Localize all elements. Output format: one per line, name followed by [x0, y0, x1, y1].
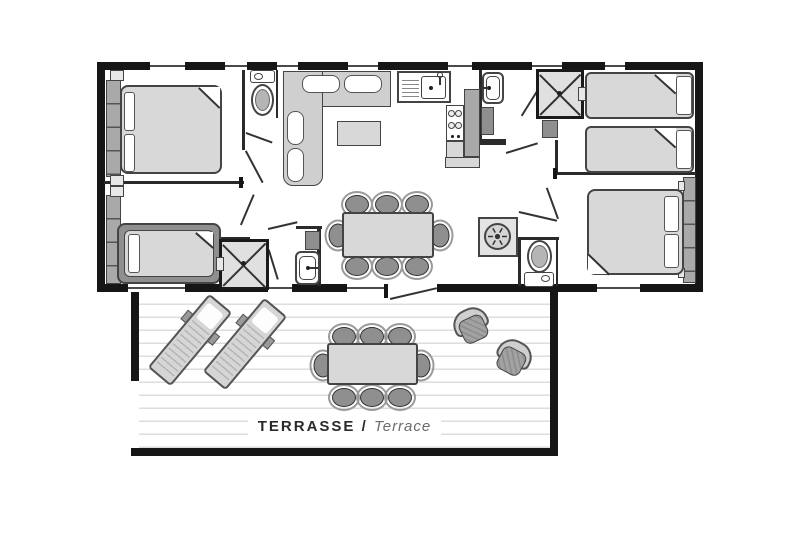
- wall-wc-right: [276, 70, 278, 118]
- dining-chair: [405, 257, 429, 276]
- double-bed: [120, 85, 222, 174]
- faucet-spout: [439, 78, 441, 85]
- shower-door-handle: [216, 257, 224, 271]
- wall-left: [97, 62, 105, 292]
- sofa-cushion: [344, 75, 382, 93]
- fan-icon: [486, 225, 509, 248]
- coffee-table: [337, 121, 381, 146]
- terrace-table: [327, 343, 418, 385]
- fan-circle: [484, 223, 511, 250]
- door-stop: [553, 168, 557, 179]
- wall-right: [695, 62, 703, 292]
- wall-top: [185, 62, 225, 70]
- tech-cabinet: [542, 120, 558, 138]
- shower-drain: [557, 91, 562, 96]
- wall-bottom: [437, 284, 597, 292]
- door-jamb: [384, 284, 388, 298]
- shower-drain: [241, 261, 246, 266]
- stove-knob: [451, 135, 454, 138]
- door-leaf-wc-right: [519, 211, 557, 221]
- window: [448, 65, 472, 67]
- door-leaf-bedroom-left: [245, 150, 263, 182]
- sofa-cushion: [287, 148, 304, 182]
- fridge: [464, 89, 480, 157]
- window: [150, 65, 185, 67]
- sofa-cushion: [287, 111, 304, 145]
- window: [347, 287, 387, 289]
- wardrobe-handle: [110, 175, 124, 186]
- door-leaf-bedroom-right: [546, 187, 559, 219]
- toilet-button: [254, 73, 263, 80]
- faucet-spout: [479, 87, 487, 89]
- sink-basin: [421, 76, 446, 99]
- dining-chair: [375, 257, 399, 276]
- door-leaf-bathroom-left: [268, 221, 298, 229]
- window: [532, 65, 562, 67]
- door-leaf-bedroom-single: [240, 194, 254, 225]
- wall-top: [378, 62, 448, 70]
- pillow: [124, 134, 135, 172]
- dining-chair: [345, 257, 369, 276]
- terrace-wall-right: [550, 292, 558, 456]
- terrace-label-secondary: Terrace: [374, 418, 431, 435]
- dining-table: [342, 212, 434, 258]
- faucet-icon: [487, 86, 491, 90]
- window: [225, 65, 247, 67]
- sofa-cushion: [302, 75, 340, 93]
- wall-wc-left: [242, 70, 245, 150]
- wall-top: [625, 62, 703, 70]
- window: [128, 287, 185, 289]
- floor-plan: TERRASSE / Terrace: [0, 0, 800, 533]
- wall-top: [298, 62, 348, 70]
- sink-drain: [429, 86, 433, 90]
- terrace-chair: [388, 388, 412, 407]
- window: [268, 287, 292, 289]
- pillow: [676, 130, 692, 169]
- wall-bottom: [97, 284, 128, 292]
- wardrobe-handle: [110, 186, 124, 197]
- toilet-button: [541, 275, 550, 282]
- bathroom-cabinet: [481, 107, 494, 135]
- wardrobe: [106, 80, 121, 177]
- window: [605, 65, 625, 67]
- window: [348, 65, 378, 67]
- terrace-label-primary: TERRASSE: [258, 418, 356, 435]
- terrace-wall-bottom: [131, 448, 558, 456]
- door-leaf-hall-right: [506, 142, 538, 153]
- door-leaf-bathroom-left2: [268, 250, 278, 280]
- burner-icon: [448, 110, 455, 117]
- wall-bedrooms-divider-left: [104, 181, 244, 184]
- burner-icon: [448, 122, 455, 129]
- burner-icon: [455, 122, 462, 129]
- kitchen-counter: [446, 141, 464, 158]
- stove-knob: [457, 135, 460, 138]
- terrace-chair: [360, 388, 384, 407]
- terrace-wall-left: [131, 292, 139, 381]
- terrace-label-separator: /: [355, 418, 374, 435]
- wardrobe-handle: [110, 70, 124, 81]
- wall-wc-right-left: [518, 237, 521, 286]
- wall-wc-right-side: [556, 240, 558, 286]
- toilet-bowl-inner: [531, 245, 548, 268]
- window: [597, 287, 640, 289]
- toilet-bowl-inner: [255, 89, 270, 111]
- kitchen-counter-end: [445, 157, 480, 168]
- pillow: [664, 234, 679, 268]
- door-stop: [239, 177, 243, 188]
- burner-icon: [455, 110, 462, 117]
- terrace-chair: [332, 388, 356, 407]
- wall-bath-stub: [478, 139, 506, 145]
- bathroom-cabinet: [305, 231, 320, 250]
- terrace-label: TERRASSE / Terrace: [139, 416, 550, 437]
- pillow: [128, 234, 140, 273]
- pillow: [124, 92, 135, 131]
- pillow: [676, 76, 692, 115]
- window: [277, 65, 298, 67]
- wall-bottom: [640, 284, 703, 292]
- drainboard: [402, 77, 419, 98]
- faucet-spout: [310, 267, 318, 269]
- wall-top: [247, 62, 277, 70]
- wall-top: [472, 62, 532, 70]
- door-leaf-wc-front: [246, 132, 273, 143]
- pillow: [664, 196, 679, 232]
